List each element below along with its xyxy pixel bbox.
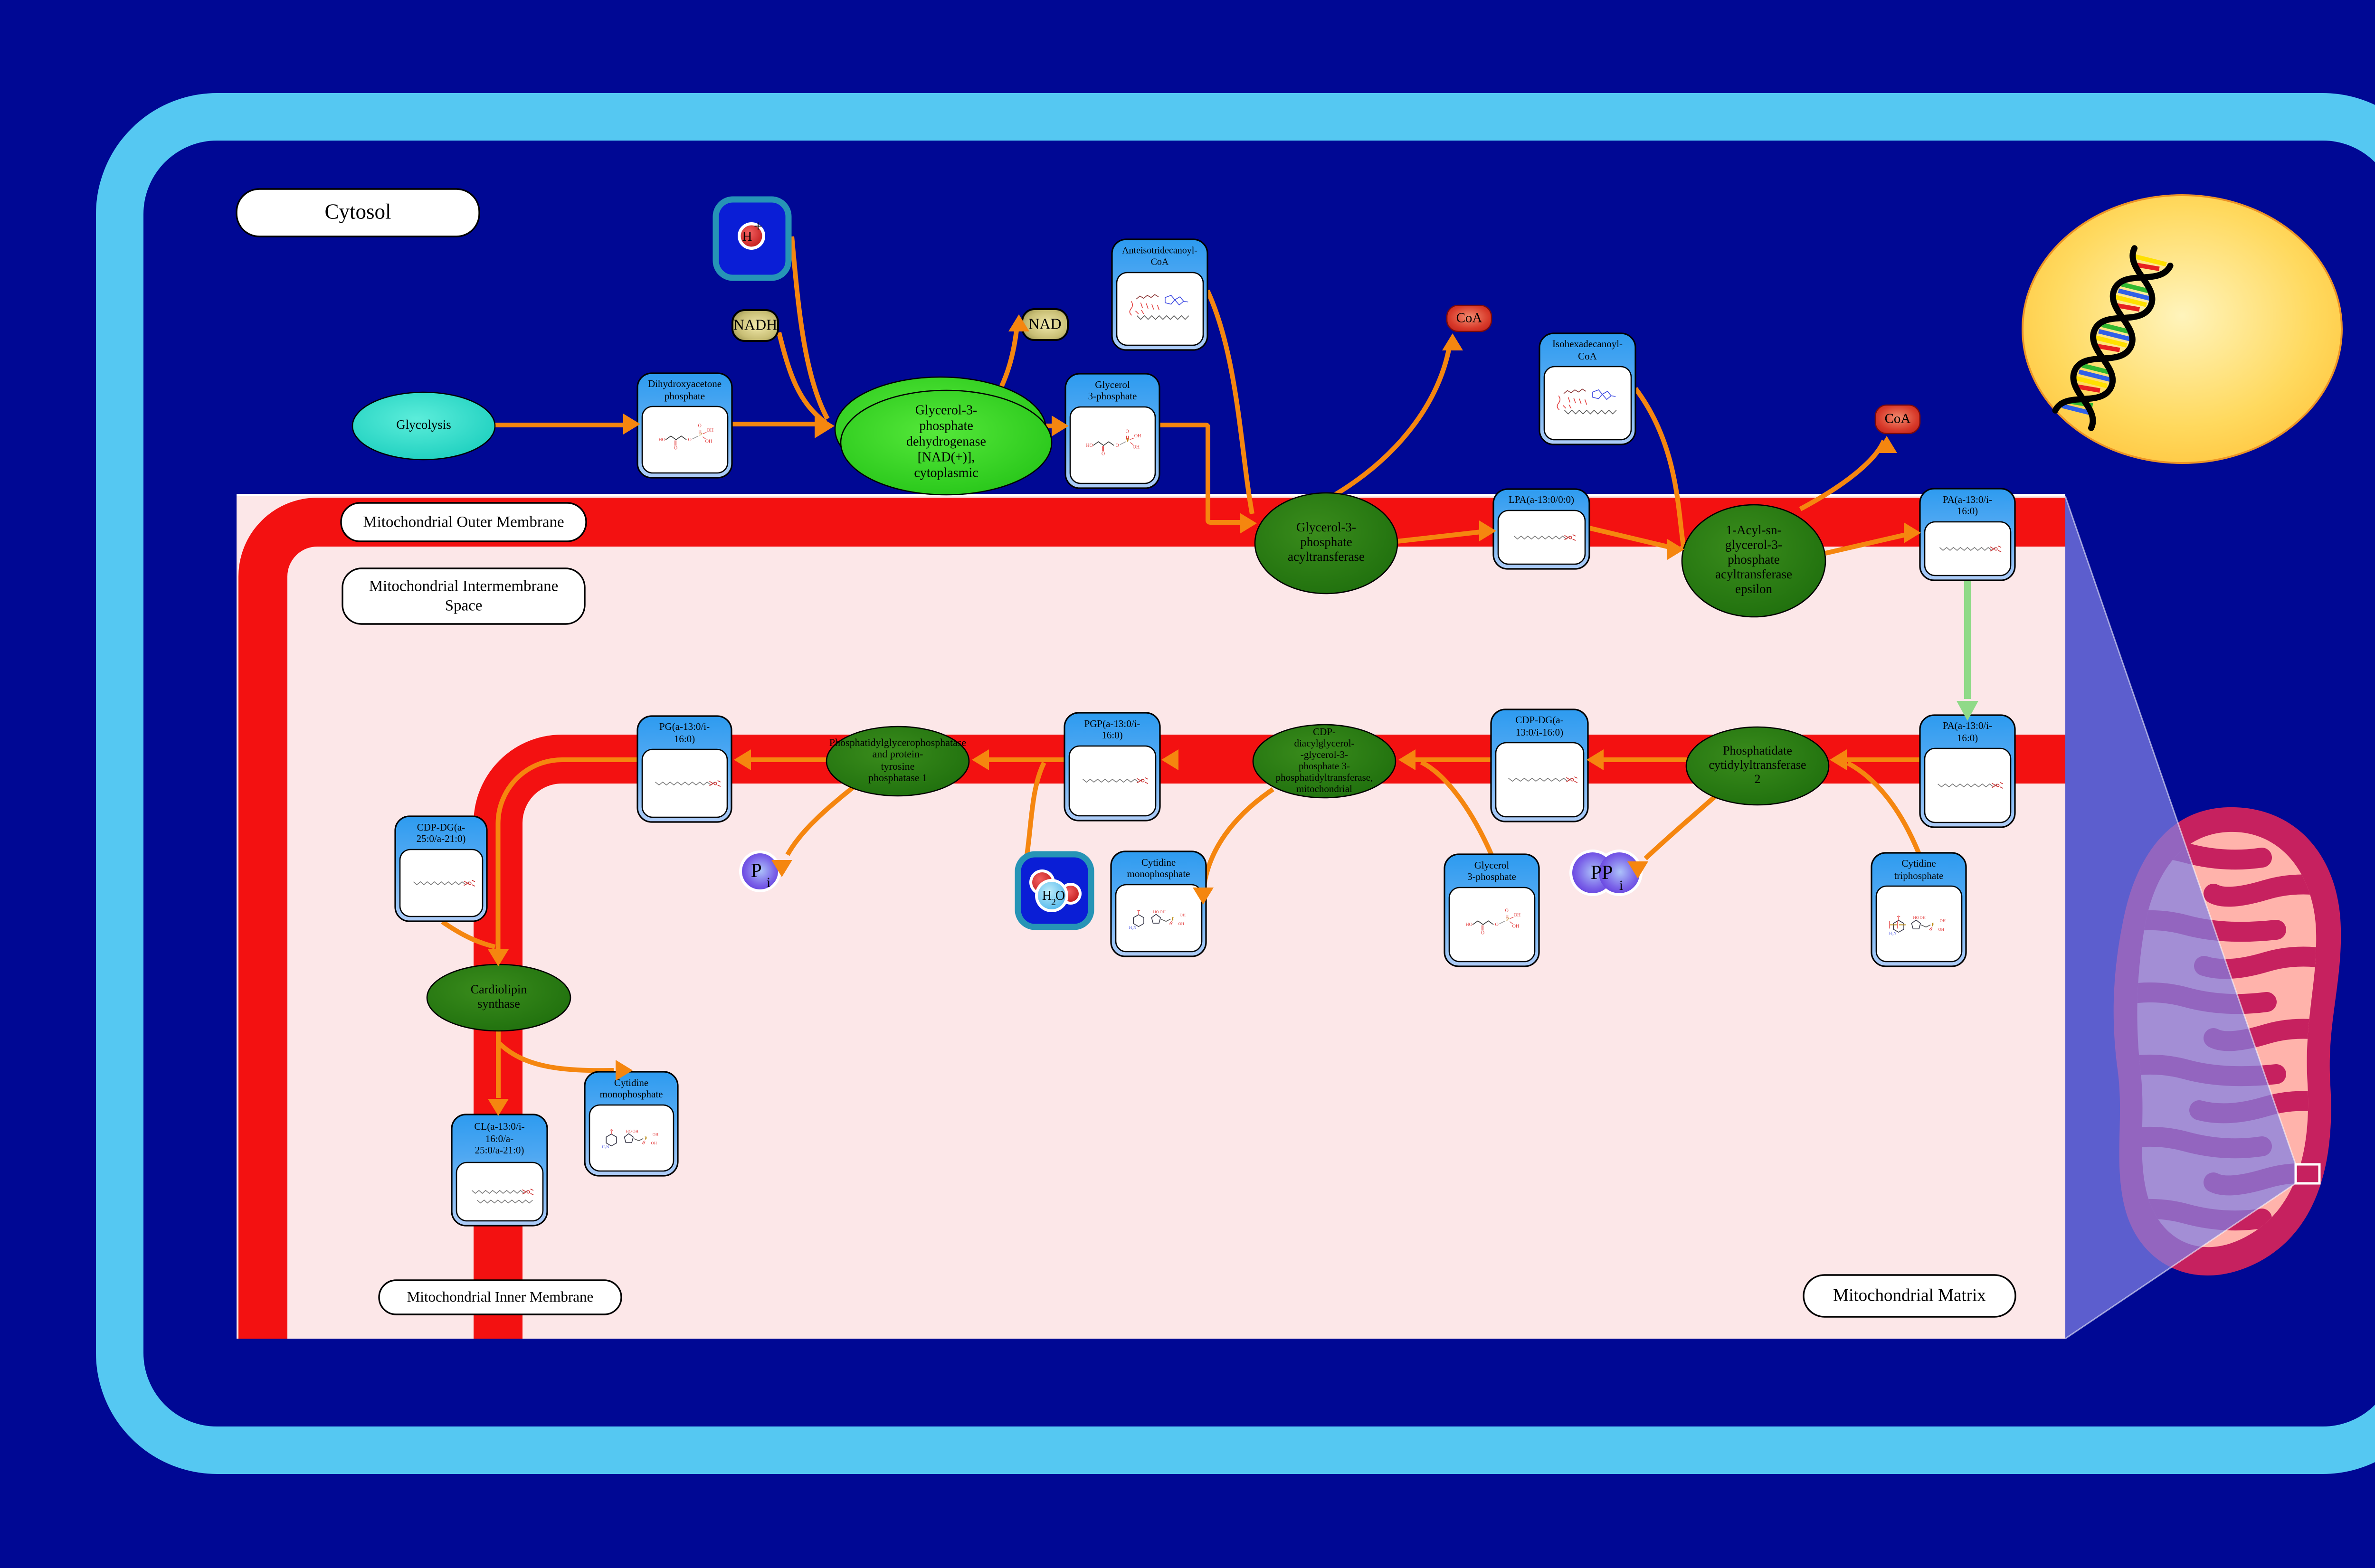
svg-text:3-phosphate: 3-phosphate (1088, 390, 1137, 402)
svg-text:Cytidine: Cytidine (1901, 858, 1936, 869)
svg-text:CoA: CoA (1578, 350, 1597, 362)
svg-text:Anteisotridecanoyl-: Anteisotridecanoyl- (1122, 246, 1197, 256)
svg-text:CoA: CoA (1151, 257, 1169, 267)
svg-text:O: O (1126, 429, 1129, 434)
svg-text:CoA: CoA (1456, 311, 1482, 326)
svg-text:PA(a-13:0/i-: PA(a-13:0/i- (1943, 720, 1992, 731)
svg-text:i: i (1619, 878, 1623, 893)
svg-text:PP: PP (1591, 862, 1613, 884)
svg-text:P: P (1506, 916, 1509, 922)
svg-text:diacylglycerol-: diacylglycerol- (1294, 737, 1354, 749)
svg-text:[NAD(+)],: [NAD(+)], (918, 450, 975, 464)
svg-text:-glycerol-3-: -glycerol-3- (1301, 749, 1348, 760)
svg-text:phosphate: phosphate (1728, 552, 1779, 567)
svg-text:OH: OH (653, 1132, 658, 1136)
svg-text:epsilon: epsilon (1735, 582, 1772, 596)
svg-text:Mitochondrial Outer Membrane: Mitochondrial Outer Membrane (363, 514, 564, 531)
svg-text:O: O (674, 445, 677, 451)
svg-text:phosphate 3-: phosphate 3- (1299, 760, 1350, 772)
svg-text:16:0/a-: 16:0/a- (485, 1133, 513, 1144)
svg-text:OH: OH (1180, 912, 1186, 917)
svg-text:+: + (754, 218, 763, 235)
svg-text:triphosphate: triphosphate (1894, 870, 1944, 881)
svg-text:phosphatase 1: phosphatase 1 (868, 772, 927, 784)
svg-text:phosphate: phosphate (919, 418, 973, 433)
svg-text:Glycerol-3-: Glycerol-3- (1296, 520, 1356, 534)
svg-text:OH: OH (1920, 915, 1926, 920)
svg-text:HO: HO (1153, 909, 1159, 914)
svg-text:25:0/a-21:0): 25:0/a-21:0) (417, 833, 466, 844)
svg-text:Mitochondrial Intermembrane: Mitochondrial Intermembrane (369, 578, 559, 595)
svg-text:16:0): 16:0) (1957, 505, 1978, 517)
svg-text:cytoplasmic: cytoplasmic (914, 465, 978, 480)
svg-text:OH: OH (651, 1141, 657, 1145)
svg-text:OH: OH (707, 428, 714, 433)
svg-text:O: O (1115, 443, 1119, 448)
svg-text:monophosphate: monophosphate (600, 1088, 663, 1100)
svg-text:3-phosphate: 3-phosphate (1467, 871, 1516, 882)
svg-text:PG(a-13:0/i-: PG(a-13:0/i- (659, 721, 710, 732)
svg-text:H₂N: H₂N (1129, 925, 1136, 930)
svg-text:OH: OH (1160, 909, 1166, 914)
svg-text:phosphatidyltransferase,: phosphatidyltransferase, (1276, 772, 1373, 783)
svg-text:HO: HO (1086, 443, 1093, 448)
svg-text:Phosphatidylglycerophosphatase: Phosphatidylglycerophosphatase (829, 737, 966, 748)
svg-text:dehydrogenase: dehydrogenase (906, 434, 986, 449)
svg-text:HO: HO (1913, 915, 1919, 920)
svg-text:monophosphate: monophosphate (1127, 868, 1190, 879)
svg-text:acyltransferase: acyltransferase (1288, 549, 1365, 564)
svg-text:tyrosine: tyrosine (881, 760, 915, 772)
svg-text:phosphate: phosphate (1300, 535, 1352, 549)
svg-text:O: O (1055, 888, 1065, 903)
svg-text:Cytidine: Cytidine (614, 1077, 648, 1088)
svg-text:16:0): 16:0) (1102, 729, 1122, 741)
svg-text:OH: OH (1940, 918, 1946, 923)
svg-text:13:0/i-16:0): 13:0/i-16:0) (1516, 727, 1563, 738)
svg-text:and protein-: and protein- (873, 748, 923, 760)
svg-text:O: O (1495, 922, 1498, 927)
svg-text:OH: OH (1938, 927, 1944, 932)
svg-text:Cytosol: Cytosol (324, 199, 391, 223)
svg-text:Dihydroxyacetone: Dihydroxyacetone (648, 378, 722, 389)
svg-text:cytidylyltransferase: cytidylyltransferase (1709, 758, 1806, 772)
svg-text:OH: OH (1178, 921, 1184, 926)
svg-text:O: O (698, 423, 702, 428)
svg-text:H: H (1042, 888, 1052, 903)
svg-text:OH: OH (1134, 434, 1141, 439)
svg-text:P: P (1127, 437, 1130, 443)
svg-text:H₂N: H₂N (602, 1144, 609, 1149)
svg-text:Mitochondrial Matrix: Mitochondrial Matrix (1833, 1285, 1986, 1305)
svg-text:CDP-DG(a-: CDP-DG(a- (417, 822, 465, 833)
svg-text:Cardiolipin: Cardiolipin (471, 982, 527, 996)
svg-text:O: O (1481, 930, 1484, 935)
svg-text:synthase: synthase (477, 997, 520, 1011)
svg-text:O: O (688, 437, 691, 443)
svg-text:H: H (742, 229, 752, 244)
svg-text:OH: OH (1514, 913, 1521, 918)
svg-text:HO: HO (1465, 922, 1472, 927)
svg-text:P: P (1172, 917, 1175, 922)
svg-text:Glycerol: Glycerol (1474, 860, 1510, 871)
svg-text:Phosphatidate: Phosphatidate (1723, 744, 1792, 757)
svg-text:P: P (1932, 923, 1935, 928)
svg-text:16:0): 16:0) (674, 733, 695, 745)
svg-text:P: P (645, 1136, 647, 1142)
svg-text:Isohexadecanoyl-: Isohexadecanoyl- (1552, 338, 1623, 349)
svg-text:Glycolysis: Glycolysis (396, 417, 451, 432)
svg-text:P: P (750, 860, 761, 882)
svg-text:H₂N: H₂N (1889, 931, 1896, 935)
svg-text:phosphate: phosphate (665, 390, 705, 402)
svg-text:O: O (1102, 451, 1105, 456)
svg-text:O: O (1505, 908, 1509, 913)
svg-text:OH: OH (705, 439, 712, 444)
svg-text:CDP-: CDP- (1313, 726, 1336, 737)
svg-text:Glycerol: Glycerol (1095, 379, 1130, 390)
svg-text:25:0/a-21:0): 25:0/a-21:0) (475, 1144, 524, 1156)
svg-text:Space: Space (445, 597, 483, 614)
svg-text:OH: OH (1133, 444, 1140, 450)
svg-text:Mitochondrial Inner Membrane: Mitochondrial Inner Membrane (407, 1288, 594, 1305)
svg-text:NADH: NADH (733, 316, 777, 333)
svg-text:CL(a-13:0/i-: CL(a-13:0/i- (474, 1121, 524, 1132)
svg-text:OH: OH (1512, 924, 1520, 929)
svg-text:HO: HO (626, 1129, 632, 1133)
svg-text:i: i (767, 875, 770, 890)
svg-text:CDP-DG(a-: CDP-DG(a- (1515, 714, 1563, 726)
svg-text:1-Acyl-sn-: 1-Acyl-sn- (1726, 523, 1782, 537)
svg-text:glycerol-3-: glycerol-3- (1725, 538, 1782, 552)
svg-text:Glycerol-3-: Glycerol-3- (915, 403, 978, 417)
svg-text:mitochondrial: mitochondrial (1296, 783, 1352, 794)
svg-text:NAD: NAD (1028, 315, 1061, 332)
svg-text:Cytidine: Cytidine (1141, 857, 1176, 868)
svg-text:OH: OH (633, 1129, 638, 1133)
svg-text:16:0): 16:0) (1957, 732, 1978, 744)
svg-text:2: 2 (1755, 772, 1761, 786)
svg-text:PA(a-13:0/i-: PA(a-13:0/i- (1943, 494, 1992, 505)
svg-text:acyltransferase: acyltransferase (1715, 567, 1792, 581)
svg-text:PGP(a-13:0/i-: PGP(a-13:0/i- (1084, 718, 1140, 729)
svg-text:HO: HO (658, 437, 665, 443)
svg-text:CoA: CoA (1885, 411, 1911, 426)
svg-text:LPA(a-13:0/0:0): LPA(a-13:0/0:0) (1509, 494, 1574, 505)
svg-text:P: P (699, 432, 702, 437)
